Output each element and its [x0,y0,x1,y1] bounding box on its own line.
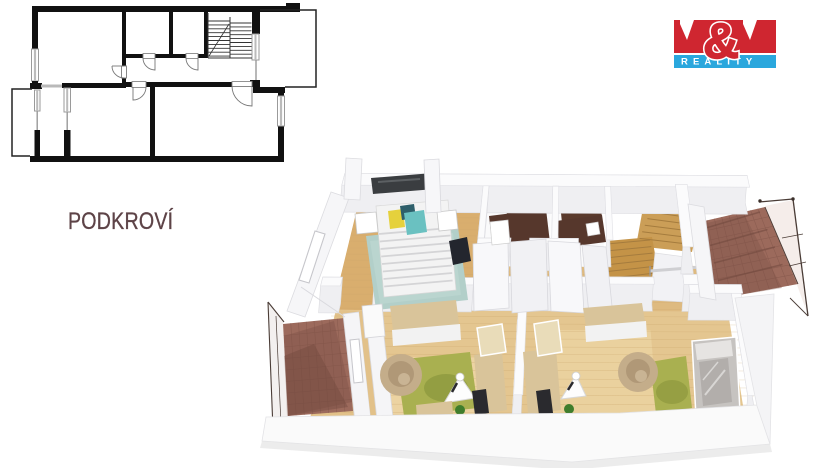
svg-text:&: & [703,13,739,69]
svg-text:PODKROVÍ: PODKROVÍ [68,207,174,235]
